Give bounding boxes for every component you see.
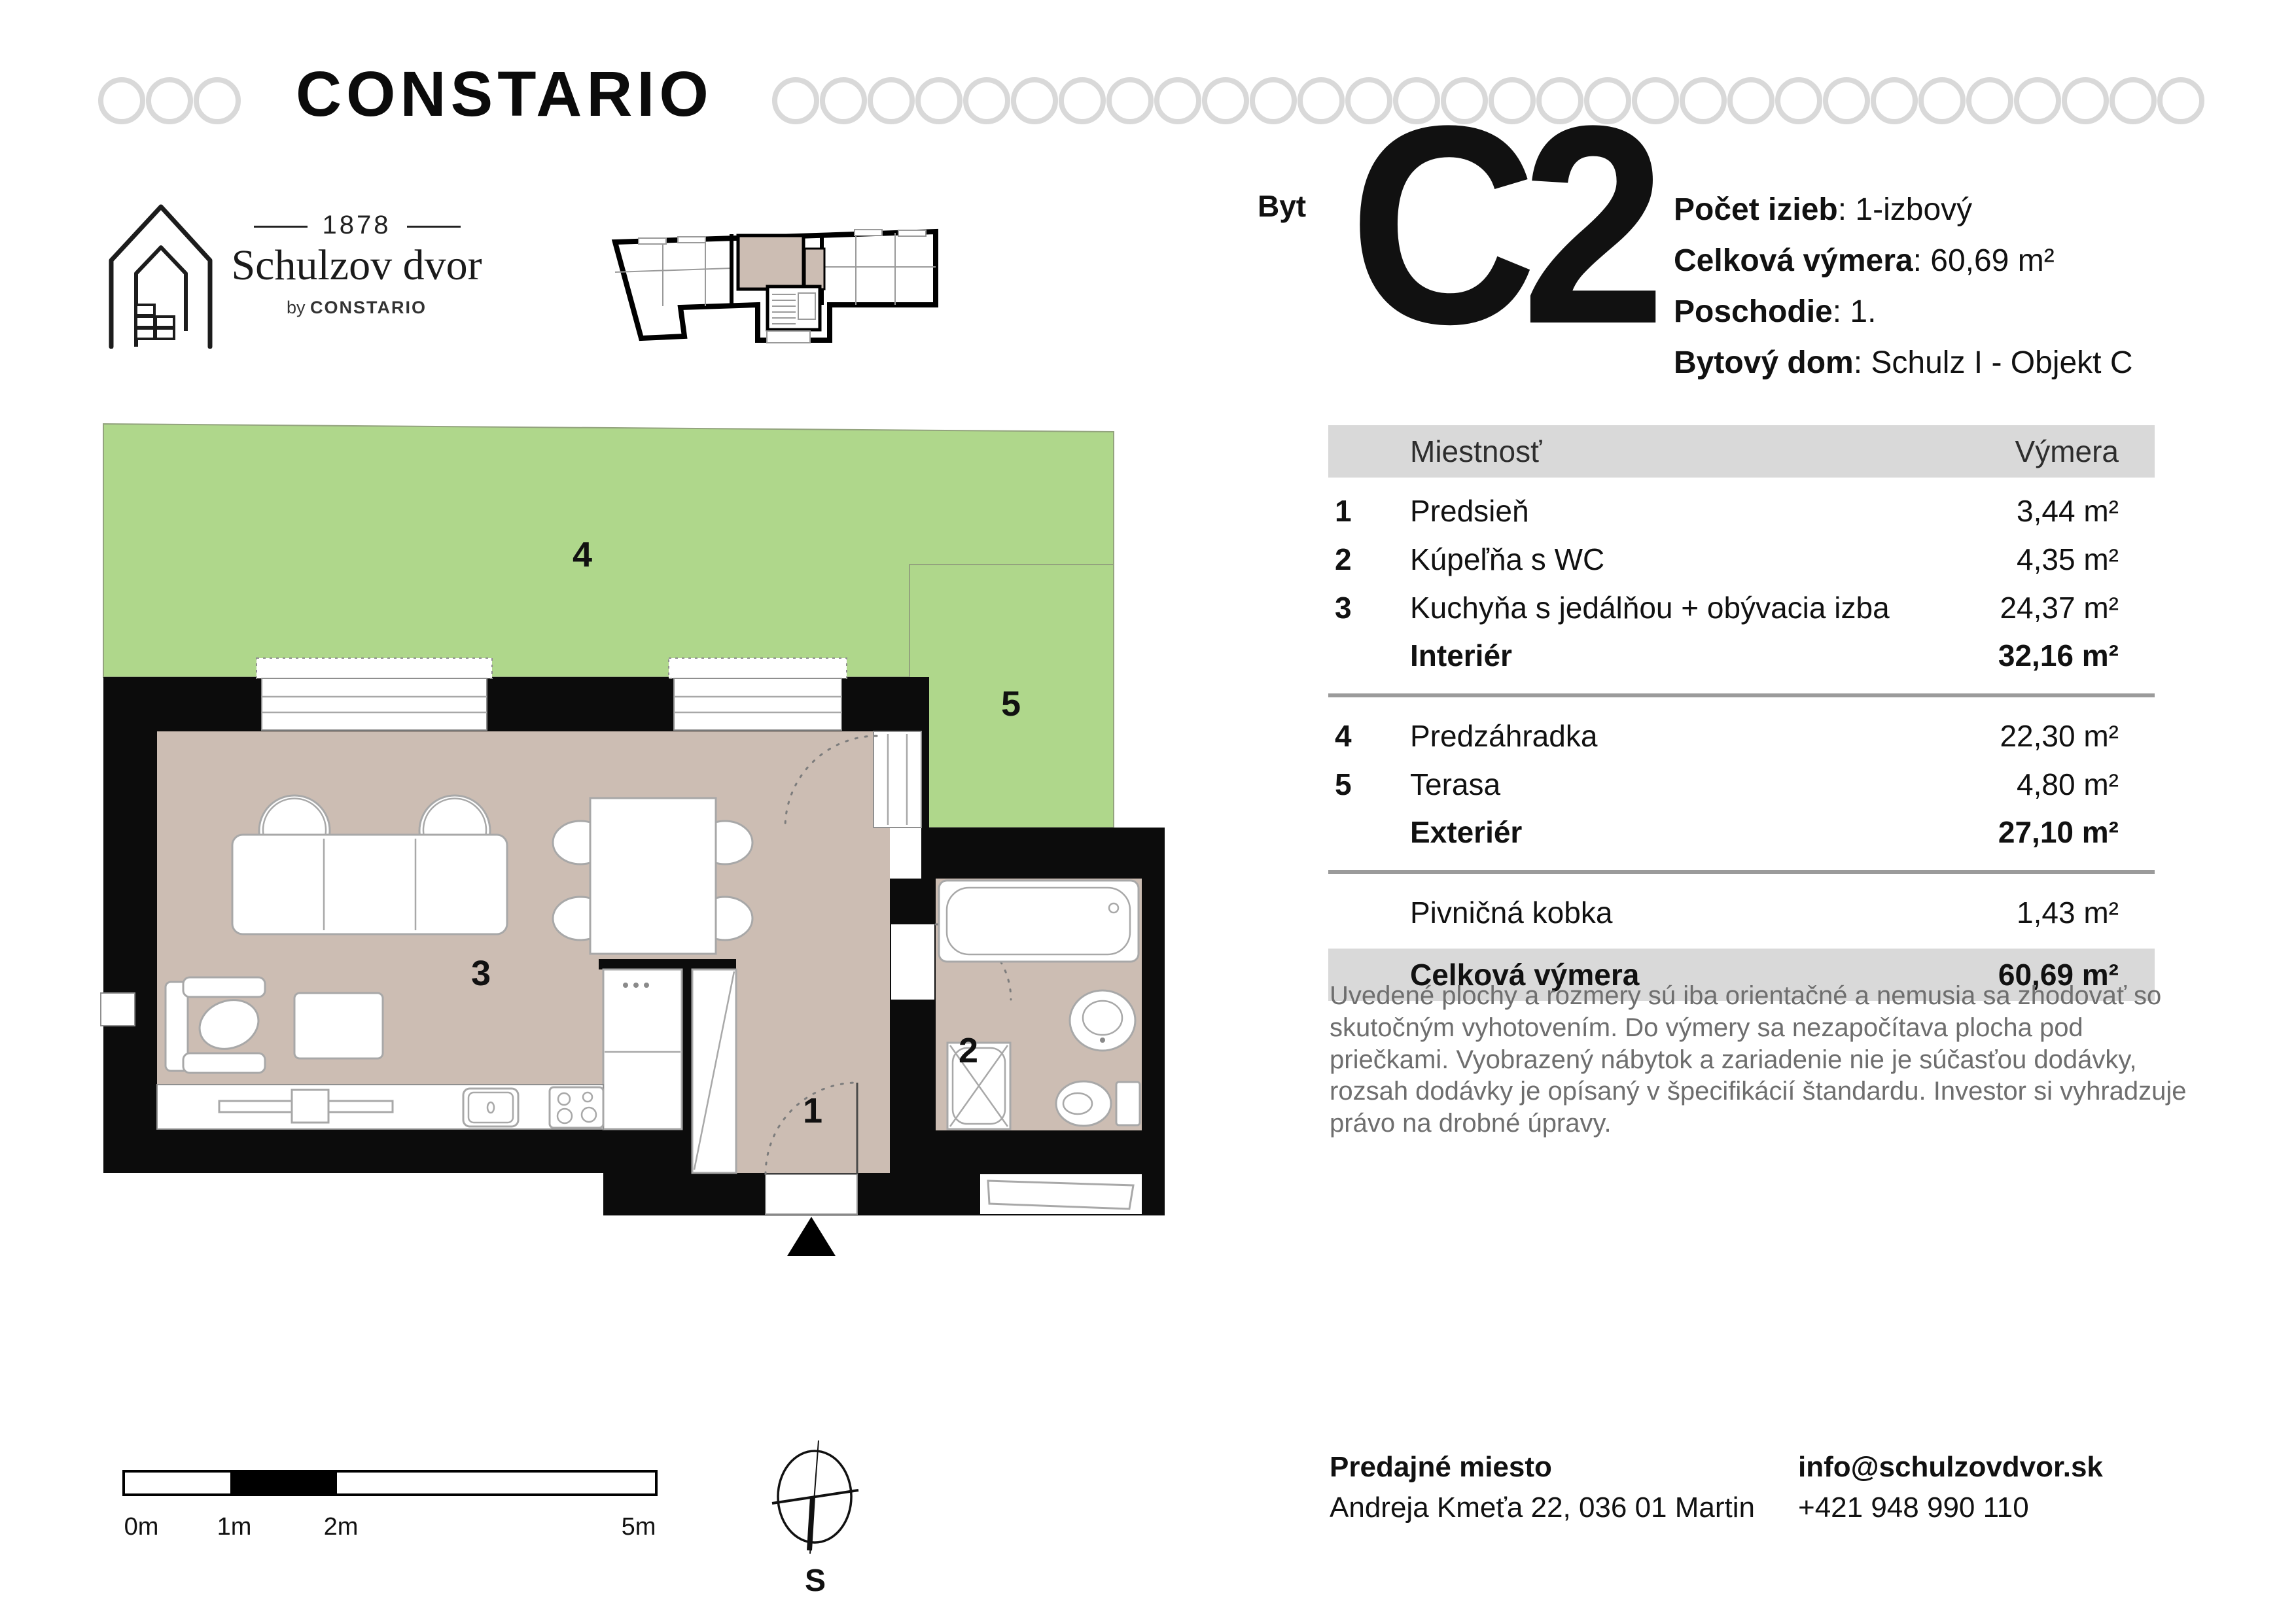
deco-circle-icon [1680, 77, 1727, 124]
toilet [1056, 1081, 1140, 1126]
cellar-row: Pivničná kobka 1,43 m² [1328, 888, 2155, 937]
table-divider [1328, 693, 2155, 697]
scale-bar: 0m 1m 2m 5m [122, 1469, 665, 1544]
exterior-sum-row: Exteriér 27,10 m² [1328, 809, 2155, 856]
deco-circle-icon [2110, 77, 2157, 124]
unit-details: Počet izieb: 1-izbový Celková výmera: 60… [1674, 184, 2133, 389]
deco-circle-icon [772, 77, 819, 124]
detail-total-area: Celková výmera: 60,69 m² [1674, 236, 2133, 287]
table-header: Miestnosť Výmera [1328, 425, 2155, 478]
bathtub [939, 881, 1139, 962]
deco-circle-icon [1011, 77, 1058, 124]
detail-value: 1. [1850, 294, 1876, 329]
deco-circle-icon [915, 77, 963, 124]
deco-circle-icon [1966, 77, 2013, 124]
deco-circle-icon [1918, 77, 1966, 124]
building-overview-plan [601, 201, 947, 362]
area-table: Miestnosť Výmera 1 Predsieň 3,44 m² 2 Kú… [1328, 425, 2155, 1001]
deco-circle-icon [1059, 77, 1106, 124]
detail-building: Bytový dom: Schulz I - Objekt C [1674, 338, 2133, 389]
deco-circle-icon [1871, 77, 1918, 124]
deco-circle-icon [1823, 77, 1870, 124]
coffee-table [294, 993, 383, 1058]
deco-circle-icon [1727, 77, 1775, 124]
deco-circles-left [98, 77, 241, 124]
contact-email: info@schulzovdvor.sk [1798, 1451, 2103, 1483]
compass-south-label: S [805, 1563, 826, 1598]
deco-circle-icon [1106, 77, 1154, 124]
entrance-arrow [787, 1217, 836, 1256]
contact-phone: +421 948 990 110 [1798, 1488, 2103, 1528]
deco-circle-icon [963, 77, 1010, 124]
unit-code: C2 [1349, 84, 1650, 366]
deco-circle-icon [1775, 77, 1822, 124]
table-row: 3 Kuchyňa s jedálňou + obývacia izba 24,… [1328, 584, 2155, 632]
sales-address: Andreja Kmeťa 22, 036 01 Martin [1330, 1488, 1755, 1528]
deco-circle-icon [1154, 77, 1201, 124]
brand-wordmark: CONSTARIO [287, 58, 722, 131]
scale-label-0m: 0m [124, 1513, 159, 1541]
scale-label-2m: 2m [324, 1513, 359, 1541]
room-label-4: 4 [573, 535, 592, 574]
detail-label: Počet izieb [1674, 192, 1838, 227]
detail-value: 60,69 m² [1930, 243, 2054, 278]
window [674, 678, 841, 730]
detail-label: Poschodie [1674, 294, 1833, 329]
room-label-5: 5 [1001, 684, 1021, 724]
wall-niche [101, 993, 135, 1026]
stove [550, 1087, 603, 1128]
kitchen-counter [157, 1085, 603, 1129]
logo-year-dash-right [407, 226, 461, 228]
table-row: 4 Predzáhradka 22,30 m² [1328, 712, 2155, 760]
col-room: Miestnosť [1410, 434, 2015, 469]
detail-label: Celková výmera [1674, 243, 1913, 278]
window-sill [669, 658, 847, 678]
window-sill [256, 658, 492, 678]
room-label-1: 1 [803, 1091, 822, 1130]
hall-closet [692, 969, 736, 1173]
deco-circle-icon [820, 77, 867, 124]
detail-value: Schulz I - Objekt C [1871, 345, 2132, 380]
deco-circle-icon [2062, 77, 2109, 124]
table-row: 2 Kúpeľňa s WC 4,35 m² [1328, 535, 2155, 584]
armchair [166, 977, 266, 1073]
scale-label-1m: 1m [217, 1513, 252, 1541]
deco-circle-icon [98, 77, 145, 124]
deco-circle-icon [2014, 77, 2061, 124]
deco-circle-icon [194, 77, 241, 124]
disclaimer-text: Uvedené plochy a rozmery sú iba orientač… [1330, 980, 2200, 1140]
sales-label: Predajné miesto [1330, 1451, 1552, 1483]
logo-by-prefix: by [287, 298, 310, 317]
logo-name: Schulzov dvor [222, 241, 491, 290]
sales-contact: Predajné miesto Andreja Kmeťa 22, 036 01… [1330, 1447, 1755, 1528]
unit-label: Byt [1258, 188, 1306, 224]
table-divider [1328, 870, 2155, 874]
highlighted-unit-c2 [738, 236, 804, 289]
col-area: Výmera [2015, 434, 2155, 469]
deco-circle-icon [868, 77, 915, 124]
scale-label-5m: 5m [622, 1513, 656, 1541]
deco-circle-icon [1202, 77, 1249, 124]
shower-washer [947, 1043, 1010, 1129]
deco-circle-icon [2157, 77, 2204, 124]
sink [463, 1089, 518, 1126]
detail-value: 1-izbový [1855, 192, 1972, 227]
compass: S [752, 1433, 877, 1609]
house-logo-icon [103, 195, 218, 349]
detail-rooms: Počet izieb: 1-izbový [1674, 184, 2133, 236]
logo-byline: by CONSTARIO [222, 298, 491, 318]
logo-by-brand: CONSTARIO [310, 298, 427, 317]
detail-floor: Poschodie: 1. [1674, 287, 2133, 338]
room-label-2: 2 [959, 1031, 978, 1070]
deco-circle-icon [146, 77, 193, 124]
floor-plan: 1 2 3 4 5 [98, 391, 1184, 1256]
entry-bench-niche [980, 1174, 1142, 1214]
room-label-3: 3 [471, 954, 491, 993]
logo-year-dash-left [254, 226, 308, 228]
washbasin [1070, 990, 1135, 1051]
brochure-page: CONSTARIO 1878 Schulzov dvor by CONSTARI… [0, 0, 2296, 1623]
window [262, 678, 487, 730]
detail-label: Bytový dom [1674, 345, 1854, 380]
deco-circle-icon [1298, 77, 1345, 124]
deco-circle-icon [1250, 77, 1297, 124]
table-row: 1 Predsieň 3,44 m² [1328, 487, 2155, 535]
interior-sum-row: Interiér 32,16 m² [1328, 632, 2155, 679]
table-row: 5 Terasa 4,80 m² [1328, 760, 2155, 809]
contact-info: info@schulzovdvor.sk +421 948 990 110 [1798, 1447, 2103, 1528]
kitchen-tall-units [603, 969, 682, 1129]
